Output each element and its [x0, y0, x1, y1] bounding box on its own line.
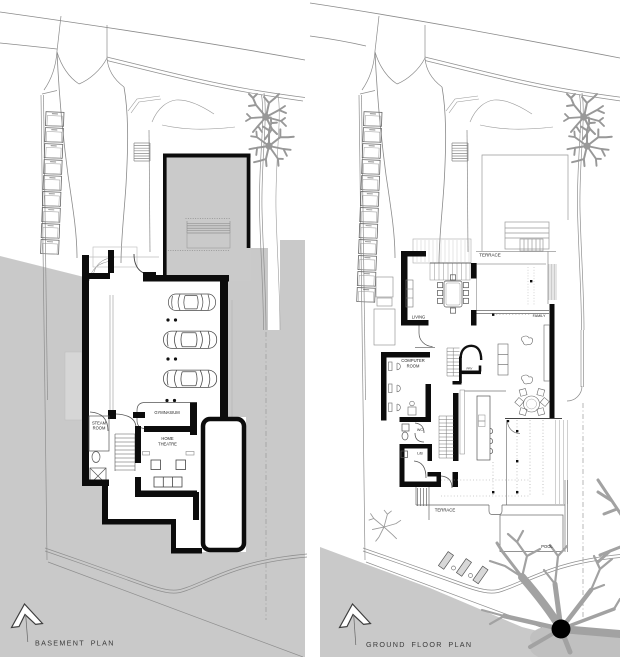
- svg-text:ROOM: ROOM: [407, 364, 420, 369]
- svg-text:BASEMENT PLAN: BASEMENT PLAN: [35, 639, 115, 648]
- svg-text:L/B: L/B: [417, 452, 423, 456]
- svg-text:LIVING: LIVING: [412, 315, 425, 320]
- svg-text:PRY: PRY: [466, 367, 472, 371]
- svg-text:THEATRE: THEATRE: [158, 442, 177, 447]
- svg-text:FAMILY: FAMILY: [533, 314, 546, 318]
- svg-text:GYMNASIUM: GYMNASIUM: [154, 410, 180, 415]
- svg-text:ROOM: ROOM: [93, 426, 106, 431]
- svg-text:TERRACE: TERRACE: [479, 253, 501, 258]
- svg-text:TERRACE: TERRACE: [435, 508, 456, 513]
- svg-text:HOME: HOME: [161, 436, 174, 441]
- svg-text:GROUND FLOOR PLAN: GROUND FLOOR PLAN: [366, 640, 472, 649]
- svg-text:COMPUTER: COMPUTER: [401, 358, 424, 363]
- svg-text:POOL: POOL: [541, 544, 553, 549]
- svg-text:WC: WC: [417, 428, 423, 432]
